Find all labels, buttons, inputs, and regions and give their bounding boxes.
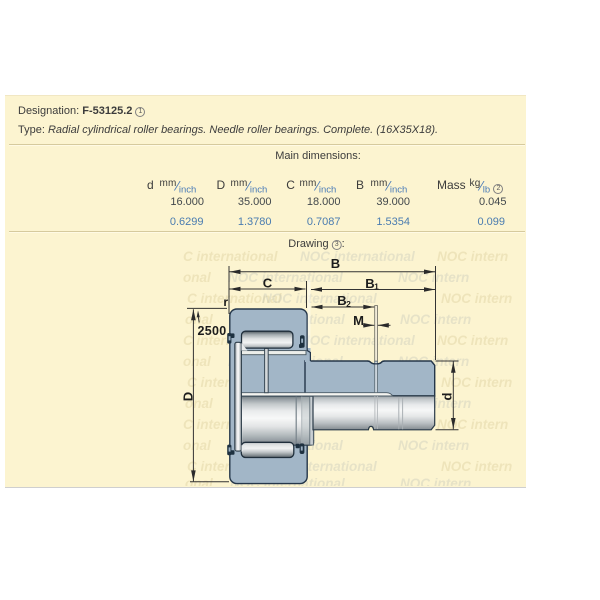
svg-text:D: D (181, 392, 196, 401)
svg-text:NOC intern: NOC intern (400, 476, 471, 491)
svg-text:2500: 2500 (198, 324, 227, 338)
svg-text:onal: onal (185, 476, 213, 491)
svg-text:onal: onal (183, 270, 211, 285)
svg-text:d: d (440, 392, 455, 400)
svg-text:onal: onal (183, 438, 211, 453)
svg-text:onal: onal (183, 354, 211, 369)
svg-text:M: M (353, 313, 364, 328)
svg-text:NOC intern: NOC intern (441, 459, 512, 474)
svg-text:B: B (331, 256, 340, 271)
svg-text:C international: C international (183, 249, 278, 264)
svg-text:NOC intern: NOC intern (437, 249, 508, 264)
svg-text:NOC intern: NOC intern (398, 438, 469, 453)
svg-text:NOC intern: NOC intern (437, 333, 508, 348)
svg-text:r: r (223, 295, 228, 309)
svg-text:1: 1 (374, 282, 379, 292)
svg-text:C: C (263, 275, 273, 290)
svg-text:NOC intern: NOC intern (441, 291, 512, 306)
svg-text:NOC international: NOC international (300, 333, 415, 348)
svg-text:NOC intern: NOC intern (441, 375, 512, 390)
svg-text:NOC international: NOC international (262, 291, 377, 306)
svg-text:NOC international: NOC international (300, 249, 415, 264)
svg-text:2: 2 (346, 299, 351, 309)
